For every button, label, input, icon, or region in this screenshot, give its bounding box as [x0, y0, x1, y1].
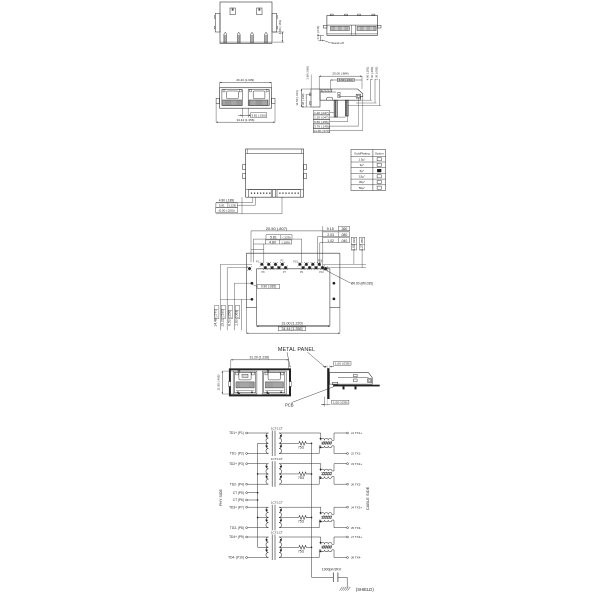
svg-text:1.60 [.063]: 1.60 [.063]: [235, 310, 239, 326]
svg-text:0.40 (.016): 0.40 (.016): [316, 26, 320, 40]
svg-text:P8: P8: [261, 271, 265, 274]
svg-text:1.68 (.066): 1.68 (.066): [306, 66, 310, 80]
svg-text:11.50 (.443): 11.50 (.443): [295, 90, 299, 105]
svg-text:1.27: 1.27: [360, 244, 364, 250]
svg-text:2.03: 2.03: [327, 233, 334, 237]
svg-text:75Ω: 75Ω: [298, 549, 305, 553]
svg-text:1.00 (.039): 1.00 (.039): [333, 400, 348, 404]
svg-text:TD1+ (P1): TD1+ (P1): [229, 431, 244, 435]
svg-text:P10: P10: [319, 271, 324, 274]
svg-text:6.50 (.256): 6.50 (.256): [314, 120, 329, 124]
svg-text:31.20 (1.228): 31.20 (1.228): [249, 355, 269, 359]
svg-text:1CT:1CT: 1CT:1CT: [271, 530, 283, 534]
svg-text:30µ″: 30µ″: [359, 180, 365, 184]
svg-text:1.5µ″: 1.5µ″: [358, 157, 365, 161]
svg-text:75Ω: 75Ω: [298, 445, 305, 449]
svg-text:11.80 (.465): 11.80 (.465): [217, 375, 221, 391]
svg-text:26.40 (1.039): 26.40 (1.039): [236, 78, 254, 82]
svg-text:3.81 (.150): 3.81 (.150): [251, 114, 266, 118]
svg-text:34.44 (1.356): 34.44 (1.356): [237, 118, 255, 122]
svg-text:6µ″: 6µ″: [360, 169, 364, 173]
svg-text:14.48 (.570): 14.48 (.570): [313, 129, 329, 133]
svg-text:1CT:1CT: 1CT:1CT: [271, 501, 283, 505]
svg-text:J7 TX4+: J7 TX4+: [351, 535, 362, 539]
svg-text:.040: .040: [341, 239, 348, 243]
svg-text:TD4- (P10): TD4- (P10): [228, 556, 244, 560]
svg-text:CABLE SIDE: CABLE SIDE: [365, 486, 370, 510]
svg-text:5.81: 5.81: [219, 204, 225, 208]
svg-text:6.50 (.242): 6.50 (.242): [339, 78, 353, 82]
svg-text:(SHIELD): (SHIELD): [356, 587, 375, 592]
svg-text:P2: P2: [280, 260, 284, 263]
svg-text:7.10 (.280): 7.10 (.280): [370, 67, 374, 81]
svg-text:J1 TX1+: J1 TX1+: [351, 431, 362, 435]
svg-text:6.50 [.256]: 6.50 [.256]: [228, 310, 232, 326]
svg-text:20.50 (.807): 20.50 (.807): [266, 226, 288, 231]
svg-text:GoldPlating: GoldPlating: [354, 152, 370, 156]
svg-text:TD1- (P2): TD1- (P2): [230, 452, 244, 456]
svg-text:J4 TX3+: J4 TX3+: [351, 505, 362, 509]
svg-text:4.80: 4.80: [269, 240, 276, 244]
svg-text:J8 TX4-: J8 TX4-: [351, 556, 361, 560]
svg-text:P15: P15: [293, 261, 298, 264]
svg-text:Option: Option: [375, 152, 384, 156]
svg-text:1.02: 1.02: [327, 239, 334, 243]
svg-text:CT (P6): CT (P6): [233, 498, 244, 502]
svg-text:METAL PANEL: METAL PANEL: [278, 347, 315, 353]
svg-text:Stand off: Stand off: [331, 41, 343, 45]
svg-text:.080: .080: [341, 233, 348, 237]
svg-text:.050: .050: [360, 238, 364, 244]
svg-text:31.00 [1.220]: 31.00 [1.220]: [282, 322, 303, 326]
svg-text:P7: P7: [283, 271, 287, 274]
svg-text:9.15: 9.15: [327, 227, 334, 231]
svg-text:TD2- (P4): TD2- (P4): [230, 482, 244, 486]
svg-text:1.20 (.047): 1.20 (.047): [314, 111, 329, 115]
svg-text:(.189): (.189): [282, 240, 290, 244]
svg-text:4.80 (.189): 4.80 (.189): [219, 199, 234, 203]
svg-text:1.00: 1.00: [352, 244, 356, 250]
svg-text:8.38 (.330): 8.38 (.330): [301, 93, 305, 107]
svg-text:(3.79 (.149)): (3.79 (.149)): [313, 124, 330, 128]
svg-text:P1: P1: [256, 261, 260, 264]
svg-text:15µ″: 15µ″: [359, 175, 365, 179]
svg-text:J5 TX3-: J5 TX3-: [351, 526, 361, 530]
svg-text:CT (P5): CT (P5): [233, 491, 244, 495]
svg-text:1CT:1CT: 1CT:1CT: [271, 426, 283, 430]
svg-text:5.81: 5.81: [270, 235, 277, 239]
svg-text:1CT:1CT: 1CT:1CT: [271, 457, 283, 461]
svg-text:(0.50 (.020)): (0.50 (.020)): [219, 209, 235, 213]
svg-text:50µ″: 50µ″: [359, 186, 365, 190]
svg-text:4.60 (.181): 4.60 (.181): [278, 20, 282, 35]
svg-text:25.00 (.984): 25.00 (.984): [332, 71, 348, 75]
svg-text:3µ″: 3µ″: [360, 163, 364, 167]
svg-text:0.90 [.035]: 0.90 [.035]: [261, 285, 276, 289]
svg-text:.039: .039: [352, 238, 356, 244]
svg-text:1.20 (.047): 1.20 (.047): [314, 115, 329, 119]
svg-text:2.36 (.093): 2.36 (.093): [375, 67, 379, 81]
svg-text:TD3- (P8): TD3- (P8): [230, 526, 244, 530]
svg-text:(.229): (.229): [229, 204, 236, 208]
svg-text:PCB: PCB: [285, 403, 294, 408]
svg-text:TD3+ (P7): TD3+ (P7): [229, 505, 244, 509]
svg-text:.360: .360: [341, 227, 348, 231]
svg-text:PHY SIDE: PHY SIDE: [219, 489, 223, 506]
svg-text:4.60 (.181): 4.60 (.181): [365, 67, 369, 81]
svg-text:J3 TX2+: J3 TX2+: [351, 462, 362, 466]
svg-text:J6 TX2-: J6 TX2-: [351, 482, 361, 486]
svg-text:J2 TX1-: J2 TX1-: [351, 452, 361, 456]
svg-text:P16: P16: [318, 260, 323, 263]
svg-text:13.21 [.520]: 13.21 [.520]: [220, 309, 224, 327]
svg-text:Ø0.90 (Ø0.035): Ø0.90 (Ø0.035): [351, 282, 373, 286]
svg-text:75Ω: 75Ω: [298, 476, 305, 480]
svg-text:P9: P9: [300, 271, 304, 274]
svg-text:1000pF/2KV: 1000pF/2KV: [322, 567, 342, 571]
svg-text:34.44 [1.356]: 34.44 [1.356]: [282, 327, 303, 331]
svg-text:75Ω: 75Ω: [298, 520, 305, 524]
svg-text:1.00 (.039): 1.00 (.039): [335, 362, 350, 366]
svg-text:(.229): (.229): [282, 235, 290, 239]
svg-text:TD2+ (P3): TD2+ (P3): [229, 462, 244, 466]
svg-text:14.48 [.570]: 14.48 [.570]: [214, 309, 218, 327]
svg-text:TD4+ (P9): TD4+ (P9): [229, 535, 244, 539]
